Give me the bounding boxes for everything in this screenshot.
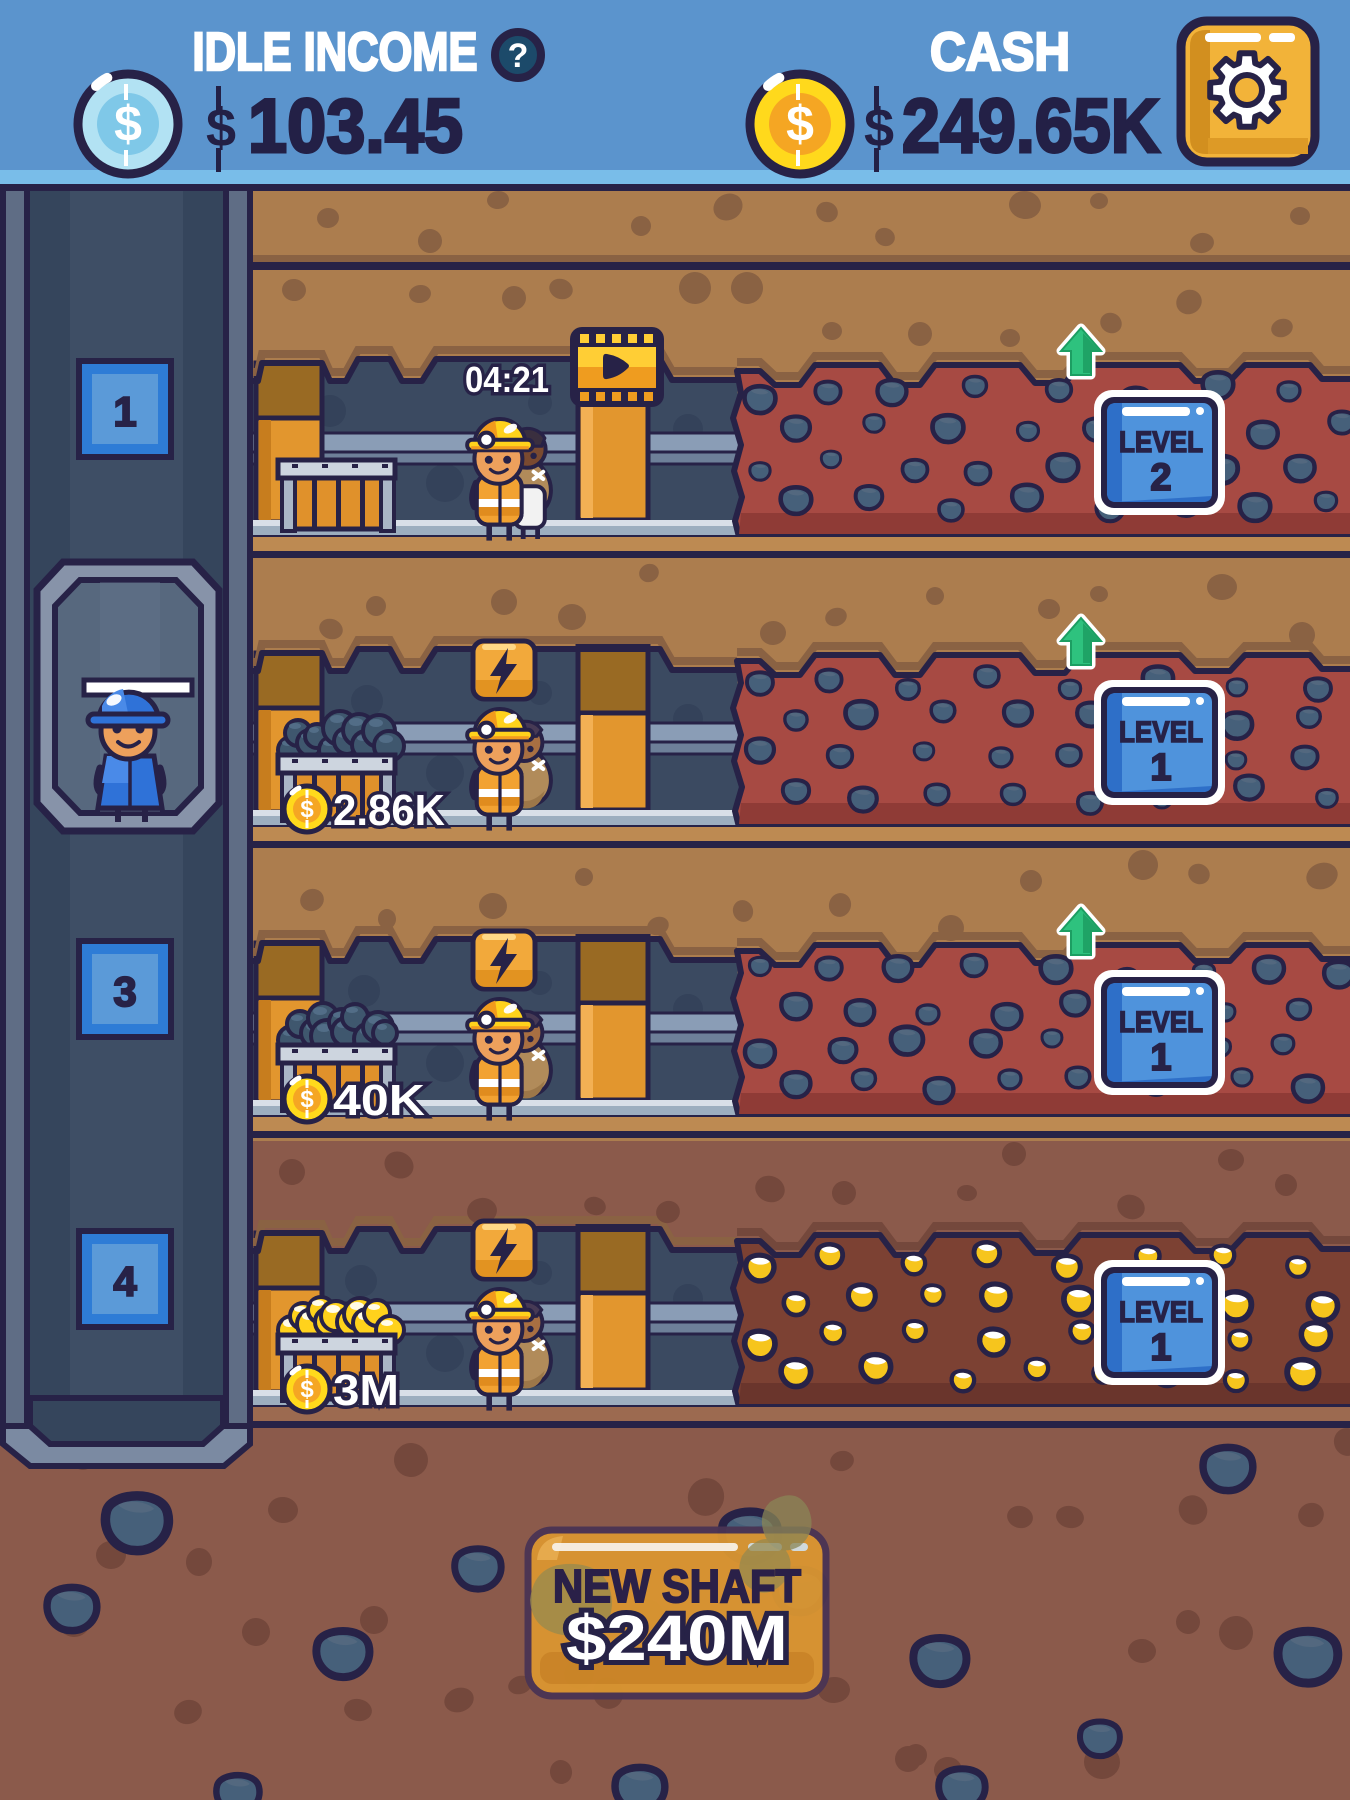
svg-text:249.65K: 249.65K xyxy=(902,84,1160,169)
svg-text:3M: 3M xyxy=(333,1366,399,1415)
svg-text:3: 3 xyxy=(113,968,136,1015)
svg-text:40K: 40K xyxy=(333,1076,425,1125)
svg-text:LEVEL: LEVEL xyxy=(1119,716,1203,749)
svg-text:2: 2 xyxy=(1150,457,1171,499)
svg-text:$: $ xyxy=(114,96,142,152)
svg-text:$: $ xyxy=(786,96,814,152)
svg-text:1: 1 xyxy=(1150,1327,1171,1369)
svg-text:$: $ xyxy=(206,98,236,158)
svg-text:?: ? xyxy=(508,37,529,75)
svg-text:103.45: 103.45 xyxy=(248,84,463,169)
svg-text:IDLE INCOME: IDLE INCOME xyxy=(193,22,478,82)
svg-text:$: $ xyxy=(864,98,894,158)
svg-text:LEVEL: LEVEL xyxy=(1119,1296,1203,1329)
svg-text:04:21: 04:21 xyxy=(465,359,549,400)
svg-text:1: 1 xyxy=(1150,747,1171,789)
svg-text:4: 4 xyxy=(113,1258,137,1305)
svg-text:1: 1 xyxy=(1150,1037,1171,1079)
svg-text:1: 1 xyxy=(113,388,136,435)
svg-text:$240M: $240M xyxy=(566,1602,788,1674)
svg-text:LEVEL: LEVEL xyxy=(1119,1006,1203,1039)
svg-text:2.86K: 2.86K xyxy=(333,786,445,835)
svg-text:LEVEL: LEVEL xyxy=(1119,426,1203,459)
svg-text:CASH: CASH xyxy=(930,22,1070,82)
